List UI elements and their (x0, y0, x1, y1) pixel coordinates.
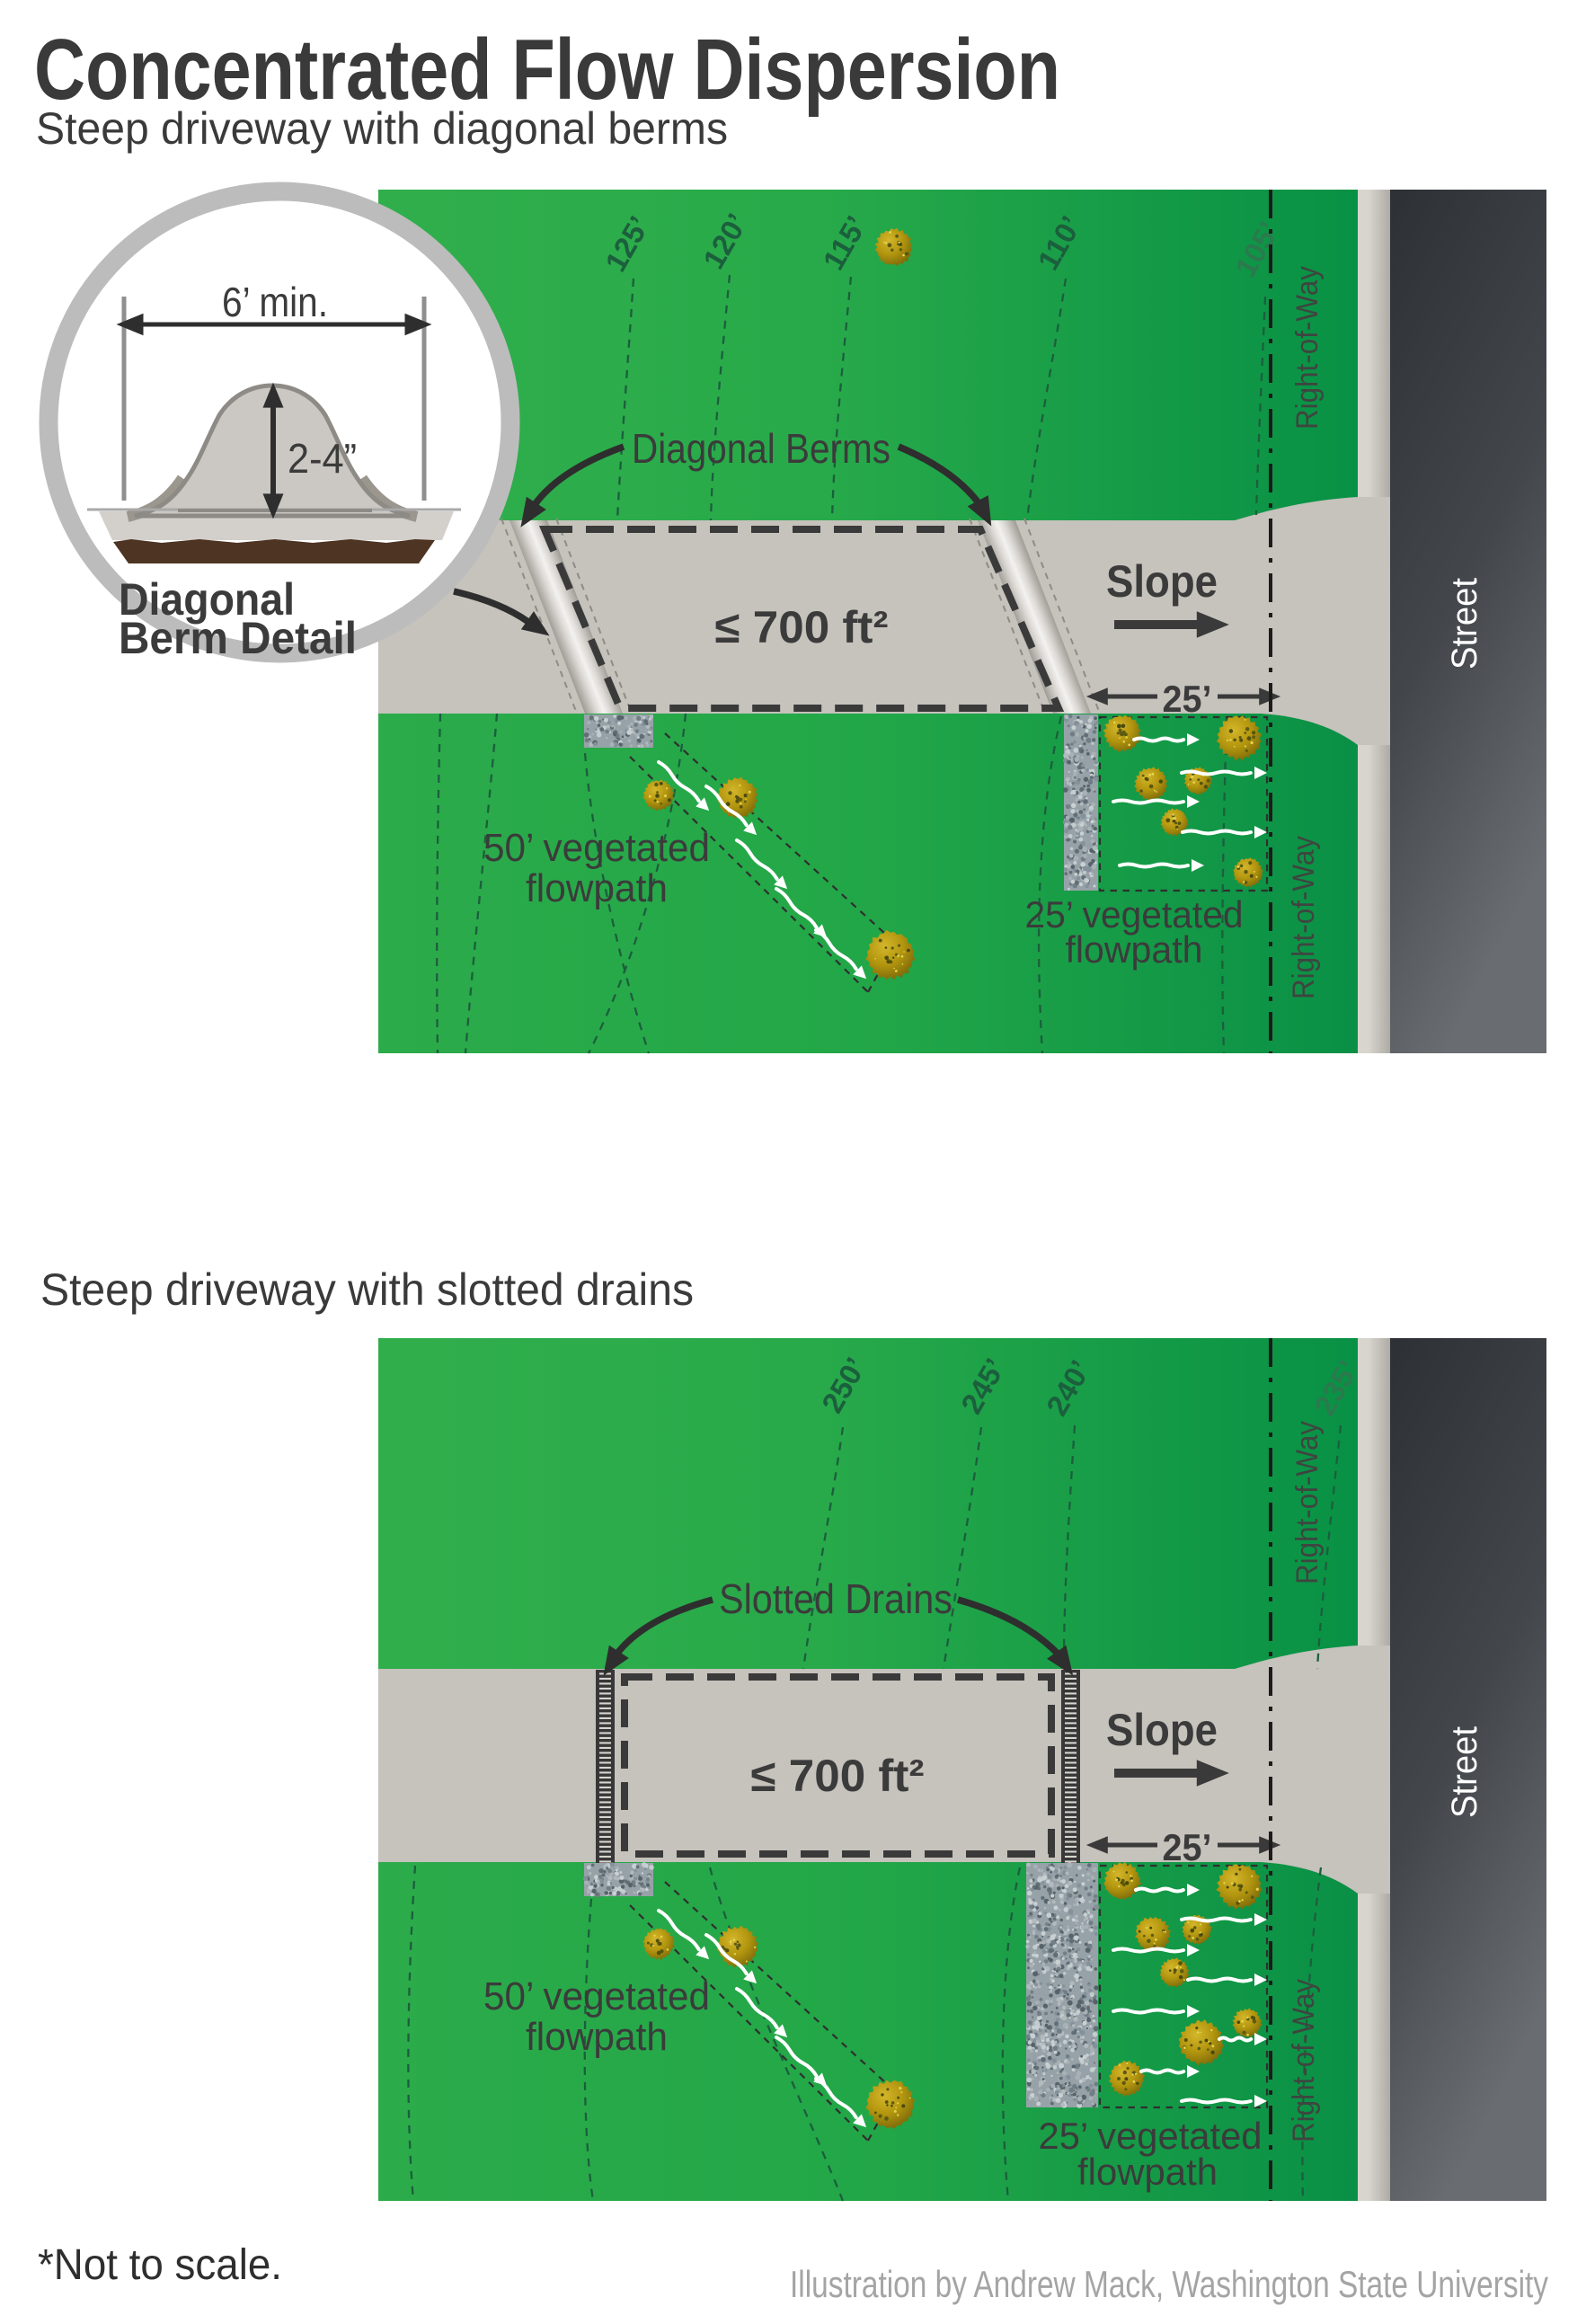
svg-text:Right-of-Way: Right-of-Way (1290, 266, 1325, 430)
svg-text:flowpath: flowpath (1077, 2151, 1218, 2193)
svg-text:Right-of-Way: Right-of-Way (1287, 1979, 1321, 2142)
svg-text:Illustration by Andrew Mack, W: Illustration by Andrew Mack, Washington … (790, 2263, 1548, 2305)
svg-text:≤ 700 ft²: ≤ 700 ft² (715, 602, 889, 652)
svg-text:Street: Street (1445, 578, 1484, 670)
svg-text:Slotted Drains: Slotted Drains (719, 1575, 952, 1622)
svg-text:Steep driveway with slotted dr: Steep driveway with slotted drains (40, 1264, 694, 1315)
svg-text:25’: 25’ (1163, 678, 1212, 720)
svg-text:≤ 700 ft²: ≤ 700 ft² (751, 1751, 925, 1801)
svg-text:Street: Street (1445, 1726, 1484, 1818)
svg-text:6’ min.: 6’ min. (222, 279, 328, 325)
svg-text:*Not to scale.: *Not to scale. (38, 2241, 282, 2289)
svg-text:Right-of-Way: Right-of-Way (1287, 836, 1321, 999)
svg-text:flowpath: flowpath (526, 866, 668, 910)
svg-text:50’ vegetated: 50’ vegetated (483, 1974, 710, 2018)
svg-text:2-4”: 2-4” (288, 435, 357, 482)
svg-text:flowpath: flowpath (1066, 928, 1203, 971)
svg-text:Steep driveway with diagonal b: Steep driveway with diagonal berms (36, 103, 728, 154)
svg-text:Slope: Slope (1106, 556, 1218, 607)
svg-text:Berm Detail: Berm Detail (119, 613, 357, 663)
svg-text:Diagonal Berms: Diagonal Berms (632, 425, 890, 472)
svg-text:flowpath: flowpath (526, 2015, 668, 2059)
svg-text:Right-of-Way: Right-of-Way (1290, 1421, 1325, 1584)
svg-text:25’: 25’ (1163, 1826, 1212, 1868)
svg-text:50’ vegetated: 50’ vegetated (483, 826, 710, 870)
svg-text:Slope: Slope (1106, 1705, 1218, 1755)
